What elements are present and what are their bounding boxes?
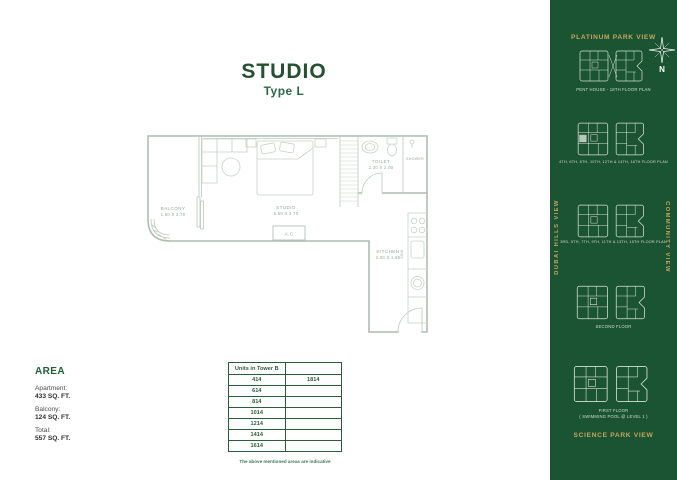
keyplan-caption-text: 4TH, 6TH, 8TH, 10TH, 12TH & 14TH, 16TH F… bbox=[550, 160, 677, 164]
platinum-park-view-label: PLATINUM PARK VIEW bbox=[550, 34, 677, 41]
ac-label: A.C bbox=[285, 232, 294, 237]
sink-label: SINK bbox=[400, 249, 404, 259]
kitchen-label: KITCHEN bbox=[377, 249, 400, 254]
brochure-page: STUDIO Type L bbox=[0, 0, 677, 480]
apartment-area-label: Apartment: bbox=[35, 385, 145, 392]
toilet-dims: 2.30 X 2.00 bbox=[369, 165, 394, 170]
shaft-hatching bbox=[340, 141, 358, 201]
dubai-hills-view-label: DUBAI HILLS VIEW bbox=[551, 137, 563, 337]
keyplan-caption: FIRST FLOOR ( SWIMMING POOL @ LEVEL 1 ) bbox=[550, 408, 677, 419]
highlighted-unit bbox=[579, 135, 586, 142]
table-row: 814 bbox=[229, 396, 341, 407]
floor-plan-drawing: A.C BALCONY 1.60 X 3.70 STUDIO 5.50 X 3.… bbox=[140, 125, 440, 355]
keyplan-penthouse bbox=[577, 48, 649, 84]
ac-unit: A.C bbox=[273, 226, 305, 240]
balcony-dims: 1.60 X 3.70 bbox=[161, 212, 186, 217]
table-row: 1414 bbox=[229, 429, 341, 440]
toilet-label: TOILET bbox=[372, 159, 390, 164]
unit-cell: 614 bbox=[229, 386, 286, 396]
keyplan-caption-text: FIRST FLOOR bbox=[550, 408, 677, 413]
unit-cell bbox=[286, 386, 342, 396]
compass-n-label: N bbox=[659, 65, 665, 74]
unit-cell: 814 bbox=[229, 397, 286, 407]
table-row: 1014 bbox=[229, 407, 341, 418]
apartment-area-value: 433 SQ. FT. bbox=[35, 393, 145, 400]
unit-cell bbox=[286, 419, 342, 429]
units-table: Units in Tower B 414 1814 614 814 1014 1… bbox=[228, 362, 342, 452]
page-title: STUDIO bbox=[184, 60, 384, 84]
unit-cell bbox=[286, 441, 342, 451]
keyplan-sidebar: N PLATINUM PARK VIEW PENT HOUSE - 18TH F… bbox=[550, 0, 677, 480]
area-summary: AREA Apartment: 433 SQ. FT. Balcony: 124… bbox=[35, 366, 145, 448]
disclaimer-note: The above mentioned areas are indicative bbox=[225, 459, 345, 464]
keyplan-caption: 4TH, 6TH, 8TH, 10TH, 12TH & 14TH, 16TH F… bbox=[550, 160, 677, 164]
unit-cell: 1814 bbox=[286, 375, 342, 385]
keyplan-caption: SECOND FLOOR bbox=[550, 324, 677, 329]
keyplan-even-floors bbox=[575, 120, 651, 158]
table-row: 614 bbox=[229, 385, 341, 396]
unit-cell bbox=[286, 408, 342, 418]
unit-cell: 414 bbox=[229, 375, 286, 385]
unit-cell: 1614 bbox=[229, 441, 286, 451]
keyplan-caption: 3RD, 5TH, 7TH, 9TH, 11TH & 13TH, 15TH FL… bbox=[550, 240, 677, 244]
table-row: 1614 bbox=[229, 440, 341, 451]
page-subtitle: Type L bbox=[184, 84, 384, 98]
studio-label: STUDIO bbox=[276, 205, 296, 210]
total-area-value: 557 SQ. FT. bbox=[35, 435, 145, 442]
keyplan-caption-text: 3RD, 5TH, 7TH, 9TH, 11TH & 13TH, 15TH FL… bbox=[550, 240, 677, 244]
keyplan-caption-text: PENT HOUSE - 18TH FLOOR PLAN bbox=[550, 87, 677, 92]
unit-cell: 1014 bbox=[229, 408, 286, 418]
keyplan-caption-text2: ( SWIMMING POOL @ LEVEL 1 ) bbox=[550, 414, 677, 419]
table-row: 414 1814 bbox=[229, 374, 341, 385]
kitchen-dims: 3.00 X 1.85 bbox=[376, 255, 401, 260]
unit-cell bbox=[286, 397, 342, 407]
compass-icon: N bbox=[648, 36, 676, 74]
keyplan-second-floor bbox=[574, 283, 652, 322]
unit-cell bbox=[286, 430, 342, 440]
balcony-area-value: 124 SQ. FT. bbox=[35, 414, 145, 421]
unit-cell: 1414 bbox=[229, 430, 286, 440]
keyplan-caption-text: SECOND FLOOR bbox=[550, 324, 677, 329]
table-row: 1214 bbox=[229, 418, 341, 429]
keyplan-first-floor bbox=[572, 362, 654, 406]
units-table-header-row: Units in Tower B bbox=[229, 363, 341, 374]
unit-cell: 1214 bbox=[229, 419, 286, 429]
studio-dims: 5.50 X 3.70 bbox=[274, 211, 299, 216]
units-table-header-empty bbox=[286, 363, 342, 374]
shower-label: SHOWER bbox=[406, 157, 424, 161]
balcony-label: BALCONY bbox=[161, 206, 186, 211]
area-heading: AREA bbox=[35, 366, 145, 377]
keyplan-odd-floors bbox=[575, 202, 651, 240]
balcony-area-label: Balcony: bbox=[35, 406, 145, 413]
total-area-label: Total: bbox=[35, 427, 145, 434]
science-park-view-label: SCIENCE PARK VIEW bbox=[550, 432, 677, 439]
keyplan-caption: PENT HOUSE - 18TH FLOOR PLAN bbox=[550, 87, 677, 92]
community-view-label: COMMUNITY VIEW bbox=[661, 137, 673, 337]
units-table-header: Units in Tower B bbox=[229, 363, 286, 374]
